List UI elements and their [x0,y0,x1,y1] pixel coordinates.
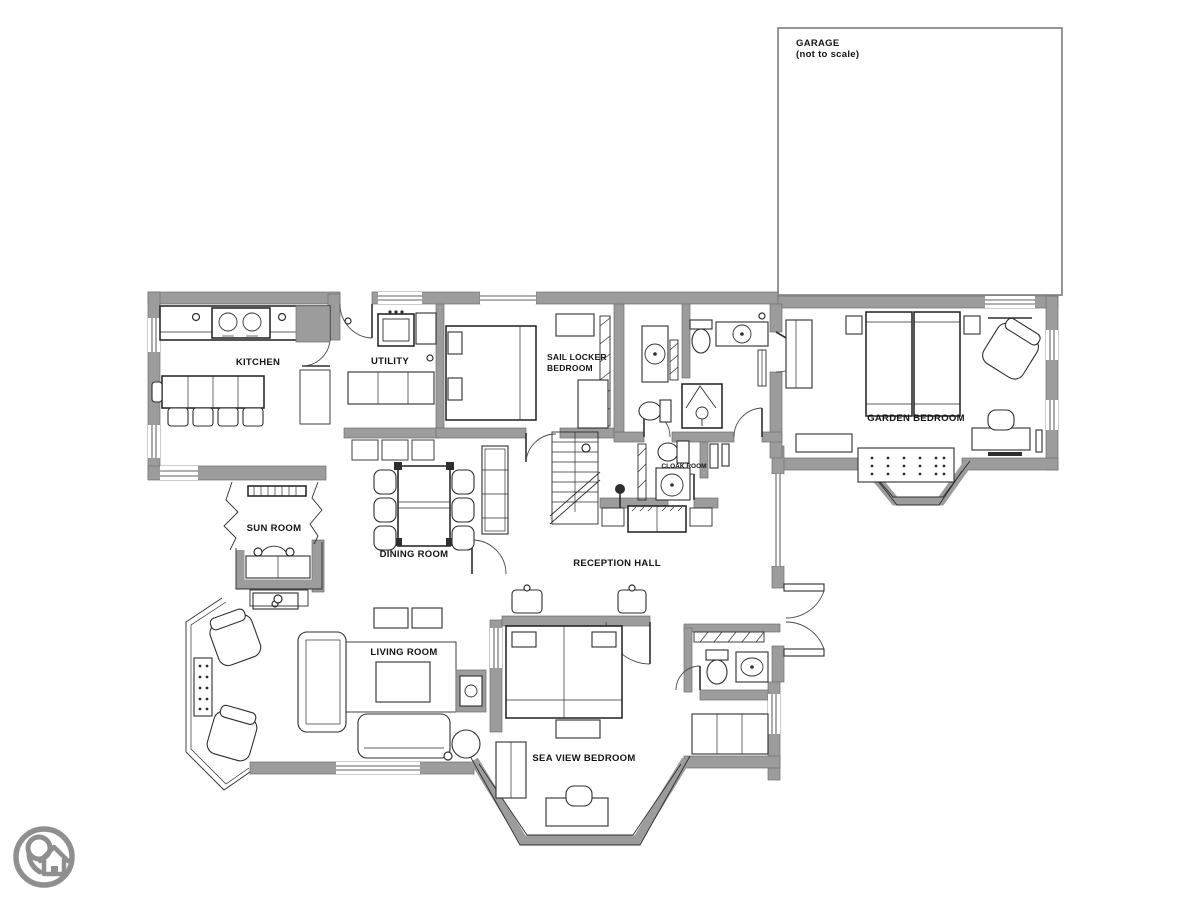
room-label-cloak-room: CLOAK ROOM [661,463,706,470]
bathroom-left [639,326,678,422]
cloak-room-furniture [638,441,729,500]
room-label-garden-bedroom: GARDEN BEDROOM [867,413,965,424]
floor-plan-canvas: GARAGE (not to scale) [0,0,1200,900]
living-room-furniture [186,598,486,790]
room-label-living-room: LIVING ROOM [370,647,437,658]
dining-room-furniture [374,446,508,550]
room-label-sun-room: SUN ROOM [247,523,302,534]
garage-note: (not to scale) [796,49,859,60]
house-icon [40,847,68,874]
bathroom-right [682,320,768,428]
sea-view-furniture [496,626,768,826]
room-label-utility: UTILITY [371,356,409,367]
floor-plan-page: GARAGE (not to scale) [0,0,1200,900]
room-label-kitchen: KITCHEN [236,357,280,368]
brand-logo [16,829,72,885]
staircase [550,432,600,524]
room-label-dining-room: DINING ROOM [380,549,449,560]
room-label-sea-view-bedroom: SEA VIEW BEDROOM [532,753,635,764]
room-label-sail-locker-1: SAIL LOCKER [547,352,607,362]
garden-bedroom-furniture [786,312,1045,482]
room-label-sail-locker-2: BEDROOM [547,363,593,373]
room-label-reception-hall: RECEPTION HALL [573,558,661,569]
garage-label: GARAGE [796,38,840,49]
reception-hall-furniture [253,434,852,613]
garage: GARAGE (not to scale) [778,28,1062,295]
